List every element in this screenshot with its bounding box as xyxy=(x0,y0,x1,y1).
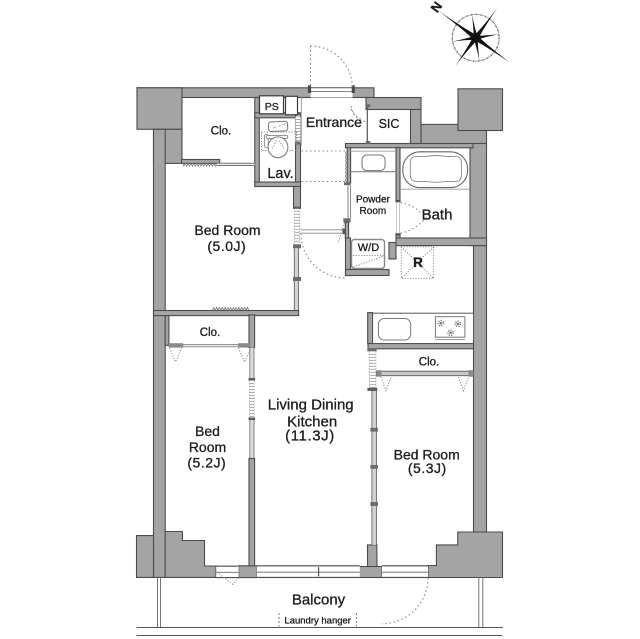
svg-text:Clo.: Clo. xyxy=(200,327,220,339)
svg-text:(5.2J): (5.2J) xyxy=(187,455,226,471)
svg-text:(5.3J): (5.3J) xyxy=(408,460,447,476)
svg-text:Bed: Bed xyxy=(195,423,220,439)
svg-text:Bed Room: Bed Room xyxy=(194,222,260,238)
svg-text:Clo.: Clo. xyxy=(211,126,231,138)
svg-text:Room: Room xyxy=(189,439,226,455)
svg-text:Powder: Powder xyxy=(356,194,391,205)
svg-text:Balcony: Balcony xyxy=(292,591,346,608)
svg-text:Clo.: Clo. xyxy=(419,357,439,369)
svg-text:Bath: Bath xyxy=(422,206,453,223)
svg-text:Entrance: Entrance xyxy=(306,114,362,130)
svg-text:SIC: SIC xyxy=(379,117,400,131)
svg-text:Living Dining: Living Dining xyxy=(268,397,354,414)
svg-text:R: R xyxy=(413,255,423,270)
svg-text:Laundry hanger: Laundry hanger xyxy=(284,616,351,627)
svg-text:Room: Room xyxy=(360,206,387,217)
svg-text:(11.3J): (11.3J) xyxy=(285,427,335,444)
svg-text:PS: PS xyxy=(265,101,279,113)
svg-text:(5.0J): (5.0J) xyxy=(207,238,246,254)
svg-text:Lav.: Lav. xyxy=(267,166,293,182)
svg-text:W/D: W/D xyxy=(358,242,379,254)
